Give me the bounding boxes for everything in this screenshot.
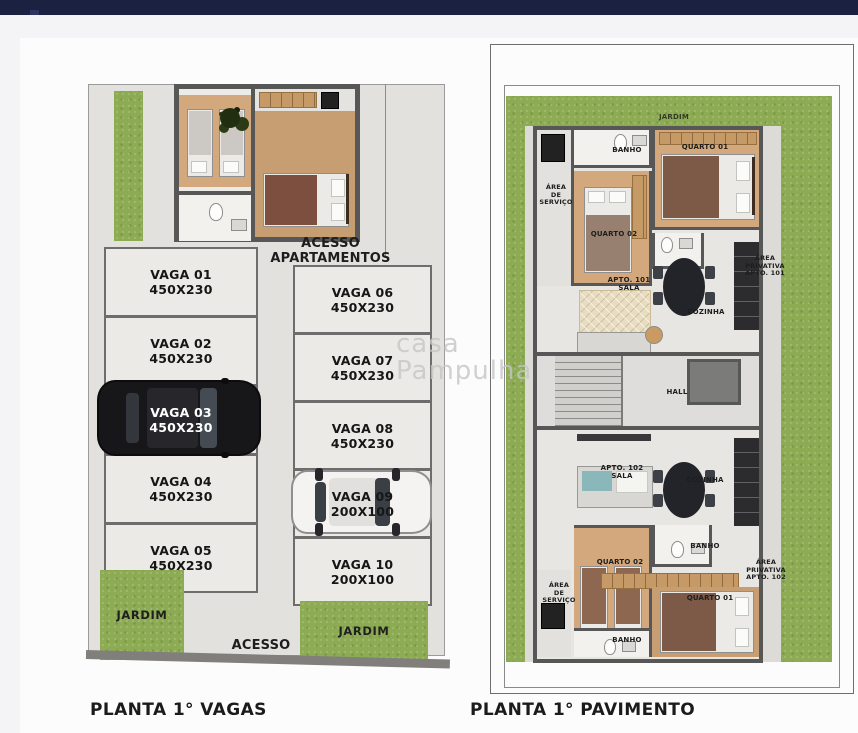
stall-size: 450X230 [149, 558, 212, 573]
stall-size: 450X230 [149, 489, 212, 504]
washer-icon [541, 603, 565, 629]
stall-name: VAGA 10 [332, 557, 394, 572]
parking-stall-vaga-06: VAGA 06 450X230 [293, 265, 432, 334]
chair [653, 494, 663, 507]
toilet-icon [661, 237, 673, 253]
stall-name: VAGA 02 [150, 336, 212, 351]
brand-watermark: casa Pampulha [396, 331, 532, 385]
parking-stall-vaga-01: VAGA 01 450X230 [104, 247, 258, 317]
banho-101-label: BANHO [597, 146, 657, 154]
parking-stall-vaga-08: VAGA 08 450X230 [293, 401, 432, 470]
banho-bottom-102-label: BANHO [597, 636, 657, 644]
parking-stall-vaga-02: VAGA 02 450X230 [104, 316, 258, 386]
stall-name: VAGA 06 [332, 285, 394, 300]
stall-size: 200X100 [331, 504, 394, 519]
area-privativa-102-label: ÁREA PRIVATIVA APTO. 102 [739, 559, 793, 582]
double-bed [661, 154, 755, 220]
staircase [555, 356, 623, 426]
single-bed [187, 109, 213, 177]
cozinha-101-label: COZINHA [675, 308, 737, 316]
preview-bedroom-right [255, 111, 355, 237]
quarto-02-101-label: QUARTO 02 [579, 230, 649, 238]
wall [537, 426, 759, 430]
parking-plan: ACESSO APARTAMENTOS VAGA 01 450X230 VAGA… [88, 84, 445, 686]
jardim-top-label: JARDIM [624, 113, 724, 121]
banho-mid-102-label: BANHO [675, 542, 735, 550]
acesso-label: ACESSO [206, 638, 316, 653]
garden-strip-left [114, 91, 143, 241]
hall-label: HALL [647, 388, 707, 396]
stall-name: VAGA 08 [332, 421, 394, 436]
tv-console [577, 434, 651, 441]
stall-name: VAGA 07 [332, 353, 394, 368]
stall-name: VAGA 01 [150, 267, 212, 282]
sink-icon [632, 135, 647, 146]
jardim-label: JARDIM [339, 625, 390, 638]
stall-size: 450X230 [331, 436, 394, 451]
shaft [687, 359, 741, 405]
side-table [645, 326, 663, 344]
area-servico-102-label: ÁREA DE SERVIÇO [537, 582, 581, 605]
apartment-preview [174, 84, 360, 242]
preview-bathroom [179, 191, 251, 241]
garden-bottom-right: JARDIM [300, 601, 428, 661]
kitchen-counter [734, 438, 759, 526]
quarto-01-102-label: QUARTO 01 [677, 594, 743, 602]
chair [653, 292, 663, 305]
quarto-02-101 [574, 171, 652, 286]
caption-pavimento: PLANTA 1° PAVIMENTO [470, 700, 695, 720]
plant-icon [220, 108, 240, 128]
top-bar [0, 0, 858, 15]
sofa [577, 332, 651, 354]
quarto-02-102-label: QUARTO 02 [585, 558, 655, 566]
sala-101-label: APTO. 101 SALA [589, 276, 669, 292]
watermark-line1: casa [396, 331, 532, 358]
stall-name: VAGA 03 [150, 405, 212, 420]
stall-size: 450X230 [331, 368, 394, 383]
parking-stall-vaga-10: VAGA 10 200X100 [293, 537, 432, 606]
quarto-01-101-label: QUARTO 01 [655, 143, 755, 151]
stall-size: 450X230 [149, 420, 212, 435]
cozinha-102-label: COZINHA [673, 476, 737, 484]
rug [579, 290, 651, 334]
toilet-icon [209, 203, 223, 221]
boundary-line [385, 84, 386, 256]
kitchen-cabinets [259, 92, 317, 108]
topbar-notch [30, 10, 39, 15]
parking-stall-vaga-09: VAGA 09 200X100 [293, 469, 432, 538]
area-servico-101-label: ÁREA DE SERVIÇO [534, 184, 578, 207]
washer-icon [541, 134, 565, 162]
area-privativa-101-label: ÁREA PRIVATIVA APTO. 101 [739, 255, 791, 278]
pavement-plan: JARDIM [490, 44, 854, 694]
parking-stall-vaga-03: VAGA 03 450X230 [104, 385, 258, 455]
acesso-apartamentos-label: ACESSO APARTAMENTOS [238, 236, 423, 266]
chair [705, 494, 715, 507]
stall-name: VAGA 04 [150, 474, 212, 489]
floor-plan-page: ACESSO APARTAMENTOS VAGA 01 450X230 VAGA… [0, 0, 858, 733]
jardim-label: JARDIM [117, 609, 168, 622]
dining-table [663, 462, 705, 518]
watermark-line2: Pampulha [396, 358, 532, 385]
area-servico-101 [537, 130, 571, 286]
preview-kitchen [255, 89, 355, 111]
sink-icon [231, 219, 247, 231]
stall-size: 450X230 [149, 282, 212, 297]
garden-bottom-left: JARDIM [100, 570, 184, 660]
stall-size: 450X230 [331, 300, 394, 315]
stall-name: VAGA 09 [332, 489, 394, 504]
parking-stall-vaga-04: VAGA 04 450X230 [104, 454, 258, 524]
building: BANHO QUARTO 01 ÁREA DE SERVIÇO QUARTO 0… [533, 126, 763, 663]
stove-icon [321, 92, 339, 109]
sink-icon [679, 238, 693, 249]
stall-size: 200X100 [331, 572, 394, 587]
chair [705, 292, 715, 305]
caption-vagas: PLANTA 1° VAGAS [90, 700, 267, 720]
sala-102-label: APTO. 102 SALA [585, 464, 659, 480]
preview-bedroom-left [179, 95, 251, 187]
stall-size: 450X230 [149, 351, 212, 366]
double-bed [263, 173, 349, 227]
stall-name: VAGA 05 [150, 543, 212, 558]
chair [705, 266, 715, 279]
